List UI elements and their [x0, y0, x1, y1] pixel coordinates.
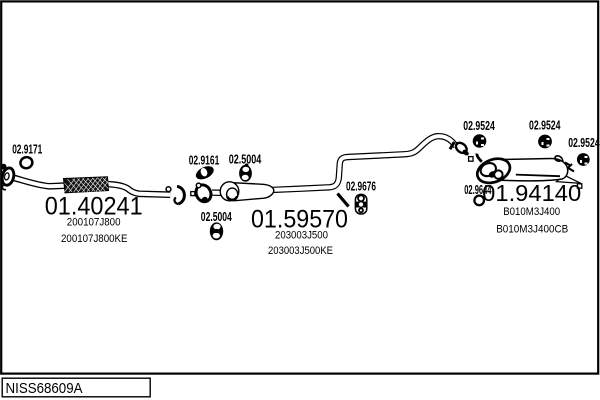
svg-text:02.5004: 02.5004	[229, 153, 262, 167]
svg-text:02.9524: 02.9524	[529, 118, 561, 132]
svg-text:02.9171: 02.9171	[12, 143, 42, 157]
svg-text:203003J500KE: 203003J500KE	[268, 245, 333, 257]
svg-text:203003J500: 203003J500	[275, 229, 328, 241]
svg-text:01.94140: 01.94140	[482, 180, 581, 206]
svg-text:B010M3J400: B010M3J400	[503, 206, 560, 218]
svg-text:02.9524: 02.9524	[568, 136, 600, 150]
svg-text:02.9524: 02.9524	[463, 119, 495, 133]
svg-text:B010M3J400CB: B010M3J400CB	[496, 223, 568, 235]
svg-text:NISS68609A: NISS68609A	[6, 380, 83, 397]
svg-text:02.9676: 02.9676	[346, 179, 376, 193]
svg-text:200107J800KE: 200107J800KE	[61, 233, 128, 245]
svg-text:02.5004: 02.5004	[201, 210, 232, 224]
svg-text:02.9161: 02.9161	[189, 154, 220, 168]
svg-text:200107J800: 200107J800	[67, 216, 121, 228]
